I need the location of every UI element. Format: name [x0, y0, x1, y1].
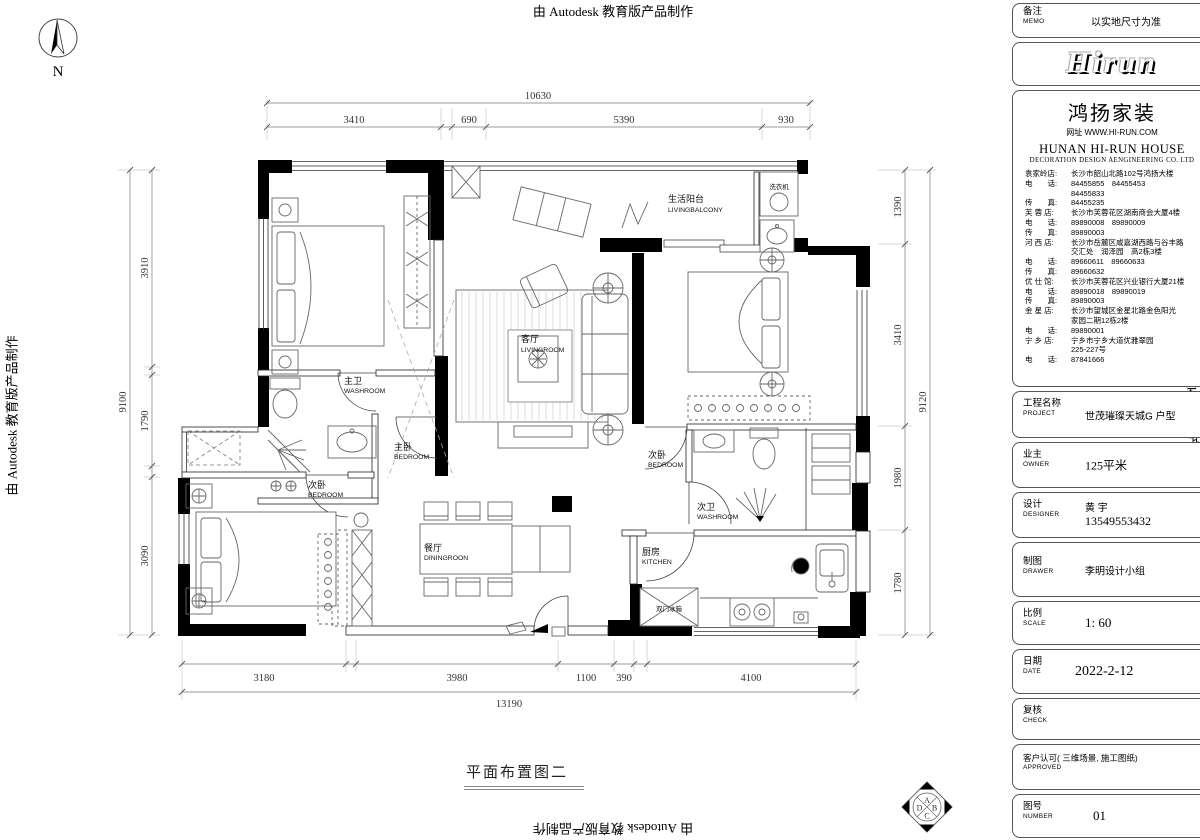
- dim-right-overall: 9120: [918, 392, 929, 413]
- contact-value: 225-227号: [1071, 345, 1106, 354]
- drawer-box: 制图DRAWER 李明设计小组: [1012, 542, 1200, 597]
- company-subtitle-en: DECORATION DESIGN AENGINEERING CO. LTD: [1013, 157, 1200, 164]
- left-bedroom-furniture: [186, 484, 338, 624]
- svg-text:690: 690: [461, 115, 477, 126]
- contact-label: 电 话:: [1025, 326, 1071, 336]
- contact-value: 89890008 89890009: [1071, 218, 1145, 227]
- project-box: 工程名称PROJECT 世茂璀璨天城G 户型: [1012, 391, 1200, 438]
- svg-text:1780: 1780: [893, 573, 904, 594]
- designer-box: 设计DESIGNER 黄 宇 13549553432: [1012, 492, 1200, 538]
- svg-text:4100: 4100: [741, 673, 762, 684]
- logo-box: Hirun: [1012, 42, 1200, 86]
- svg-text:3180: 3180: [254, 673, 275, 684]
- contact-value: 84455855 84455453: [1071, 179, 1145, 188]
- contact-line: 传 真:89660632: [1025, 267, 1200, 277]
- bedside-lamp-icon: [192, 594, 206, 608]
- contact-value: 长沙市芙蓉花区兴业银行大厦21楼: [1071, 277, 1184, 286]
- contact-value: 84455235: [1071, 198, 1104, 207]
- svg-text:B: B: [932, 804, 937, 813]
- contact-label: 宁 乡 店:: [1025, 336, 1071, 346]
- contact-value: 交汇处 润泽园 高2栋3楼: [1071, 247, 1162, 256]
- company-name-en: HUNAN HI-RUN HOUSE: [1013, 142, 1200, 157]
- svg-text:1100: 1100: [576, 673, 597, 684]
- svg-text:1980: 1980: [893, 468, 904, 489]
- contact-value: 89660632: [1071, 267, 1104, 276]
- owner-value: 125平米: [1085, 457, 1127, 474]
- second-bathroom-fixtures: [694, 428, 850, 522]
- contact-label: 电 话:: [1025, 355, 1071, 365]
- contact-line: 传 真:84455235: [1025, 198, 1200, 208]
- contact-line: 电 话:89890001: [1025, 326, 1200, 336]
- contact-label: 传 真:: [1025, 198, 1071, 208]
- title-block: 备注MEMO 以实地尺寸为准 Hirun 鸿扬家装 网址 WWW.HI-RUN.…: [1012, 0, 1200, 840]
- contact-line: 金 星 店:长沙市望城区金星北路金色阳光: [1025, 306, 1200, 316]
- designer-name: 黄 宇: [1085, 499, 1108, 514]
- north-label: N: [53, 64, 64, 80]
- bedside-lamp-icon: [760, 372, 784, 396]
- svg-text:1390: 1390: [893, 197, 904, 218]
- right-bedroom-furniture: [688, 248, 810, 420]
- dim-top-overall: 10630: [525, 91, 551, 102]
- plan-title: 平面布置图二: [464, 761, 584, 787]
- svg-text:LIVINGBALCONY: LIVINGBALCONY: [668, 207, 723, 214]
- ceiling-lamp-icon: [593, 273, 623, 303]
- contact-line: 传 真:89890003: [1025, 228, 1200, 238]
- memo-value: 以实地尺寸为准: [1091, 13, 1161, 28]
- room-label-bath2: 次卫: [697, 501, 715, 512]
- room-label-bedroom2-left: 次卧: [308, 479, 326, 490]
- svg-text:3980: 3980: [447, 673, 468, 684]
- contact-value: 家园二期12栋2楼: [1071, 316, 1129, 325]
- fridge-label: 双门冰箱: [656, 604, 683, 613]
- svg-text:WASHROOM: WASHROOM: [697, 514, 739, 521]
- contact-line: 交汇处 润泽园 高2栋3楼: [1025, 247, 1200, 257]
- hirun-logo: Hirun: [1013, 46, 1200, 80]
- contact-value: 84455833: [1071, 189, 1104, 198]
- contact-line: 电 话:89890008 89890009: [1025, 218, 1200, 228]
- contact-label: 传 真:: [1025, 228, 1071, 238]
- contact-value: 89660611 89660633: [1071, 257, 1145, 266]
- contact-label: 传 真:: [1025, 296, 1071, 306]
- contact-line: 袁家岭店:长沙市韶山北路102号鸿扬大楼: [1025, 169, 1200, 179]
- kitchen-fixtures: [640, 544, 848, 626]
- contact-label: 金 星 店:: [1025, 306, 1071, 316]
- contact-line: 芙 蓉 店:长沙市芙蓉花区湖南商会大厦4楼: [1025, 208, 1200, 218]
- contact-line: 传 真:89890003: [1025, 296, 1200, 306]
- room-label-master-bed: 主卧: [394, 441, 412, 452]
- contact-value: 长沙市岳麓区咸嘉湖西路与谷丰路: [1071, 238, 1184, 247]
- contact-value: 87841666: [1071, 355, 1104, 364]
- contact-label: 电 话:: [1025, 218, 1071, 228]
- contact-value: 89890001: [1071, 326, 1104, 335]
- room-label-master-bath: 主卫: [344, 375, 362, 386]
- contact-line: 电 话:84455855 84455453: [1025, 179, 1200, 189]
- svg-text:WASHROOM: WASHROOM: [344, 388, 386, 395]
- scale-box: 比例SCALE 1: 60: [1012, 601, 1200, 645]
- project-value: 世茂璀璨天城G 户型: [1085, 407, 1176, 422]
- room-label-living: 客厅: [521, 333, 539, 344]
- north-arrow-icon: N: [39, 19, 77, 80]
- bedside-lamp-icon: [192, 489, 206, 503]
- date-value: 2022-2-12: [1075, 664, 1133, 680]
- contact-line: 电 话:87841666: [1025, 355, 1200, 365]
- memo-box: 备注MEMO 以实地尺寸为准: [1012, 3, 1200, 38]
- contact-value: 89890003: [1071, 228, 1104, 237]
- contact-value: 宁乡市宁乡大道优雅翠园: [1071, 336, 1154, 345]
- washing-machine-label: 洗衣机: [769, 182, 789, 191]
- master-bedroom-furniture: [272, 196, 430, 374]
- svg-text:930: 930: [778, 115, 794, 126]
- svg-text:3410: 3410: [893, 325, 904, 346]
- contact-value: 89890018 89890019: [1071, 287, 1145, 296]
- svg-text:3410: 3410: [344, 115, 365, 126]
- room-label-bedroom2-right: 次卧: [648, 449, 666, 460]
- company-name: 鸿扬家装: [1013, 97, 1200, 126]
- svg-text:LIVINGROOM: LIVINGROOM: [521, 347, 565, 354]
- company-box: 鸿扬家装 网址 WWW.HI-RUN.COM HUNAN HI-RUN HOUS…: [1012, 90, 1200, 387]
- room-label-dining: 餐厅: [424, 542, 442, 553]
- dim-bottom-overall: 13190: [496, 699, 522, 710]
- contact-line: 优 仕 馆:长沙市芙蓉花区兴业银行大厦21楼: [1025, 277, 1200, 287]
- svg-text:BEDROOM: BEDROOM: [648, 462, 683, 469]
- company-contact-list: 袁家岭店:长沙市韶山北路102号鸿扬大楼 电 话:84455855 844554…: [1025, 169, 1200, 365]
- contact-value: 89890003: [1071, 296, 1104, 305]
- drawing-stamp-icon: A B C D: [902, 782, 952, 832]
- contact-label: 电 话:: [1025, 257, 1071, 267]
- designer-phone: 13549553432: [1085, 514, 1151, 529]
- contact-label: 电 话:: [1025, 287, 1071, 297]
- cad-floorplan-sheet: { "border": { "autodesk_text": "由 Autode…: [0, 0, 1200, 840]
- svg-text:A: A: [924, 796, 930, 805]
- svg-text:3910: 3910: [140, 258, 151, 279]
- company-website: 网址 WWW.HI-RUN.COM: [1013, 127, 1200, 138]
- contact-label: 电 话:: [1025, 179, 1071, 189]
- contact-value: 长沙市望城区金星北路金色阳光: [1071, 306, 1176, 315]
- svg-text:BEDROOM: BEDROOM: [308, 492, 343, 499]
- owner-box: 业主OWNER 125平米: [1012, 442, 1200, 488]
- check-box: 复核CHECK: [1012, 698, 1200, 740]
- svg-text:KITCHEN: KITCHEN: [642, 559, 672, 566]
- contact-value: 长沙市芙蓉花区湖南商会大厦4楼: [1071, 208, 1180, 217]
- dining-furniture: [332, 502, 570, 636]
- svg-text:C: C: [924, 812, 929, 821]
- svg-text:3090: 3090: [140, 546, 151, 567]
- contact-line: 电 话:89660611 89660633: [1025, 257, 1200, 267]
- living-room-furniture: [456, 263, 628, 448]
- drawer-value: 李明设计小组: [1085, 562, 1145, 577]
- svg-text:5390: 5390: [614, 115, 635, 126]
- contact-label: 河 西 店:: [1025, 238, 1071, 248]
- contact-label: 芙 蓉 店:: [1025, 208, 1071, 218]
- room-label-kitchen: 厨房: [642, 546, 660, 557]
- bedside-lamp-icon: [760, 248, 784, 272]
- dim-left-overall: 9100: [118, 392, 129, 413]
- contact-line: 宁 乡 店:宁乡市宁乡大道优雅翠园: [1025, 336, 1200, 346]
- number-box: 图号NUMBER 01: [1012, 794, 1200, 838]
- date-box: 日期DATE 2022-2-12: [1012, 649, 1200, 694]
- contact-line: 84455833: [1025, 189, 1200, 199]
- svg-text:DININGROON: DININGROON: [424, 555, 468, 562]
- ceiling-lamp-icon: [593, 415, 623, 445]
- contact-label: 传 真:: [1025, 267, 1071, 277]
- svg-text:BEDROOM: BEDROOM: [394, 454, 429, 461]
- room-label-living-balcony: 生活阳台: [668, 193, 704, 204]
- ac-unit: [188, 431, 240, 465]
- contact-line: 河 西 店:长沙市岳麓区咸嘉湖西路与谷丰路: [1025, 238, 1200, 248]
- contact-line: 电 话:89890018 89890019: [1025, 287, 1200, 297]
- svg-text:1790: 1790: [140, 411, 151, 432]
- svg-text:390: 390: [616, 673, 632, 684]
- contact-label: 优 仕 馆:: [1025, 277, 1071, 287]
- contact-line: 家园二期12栋2楼: [1025, 316, 1200, 326]
- number-value: 01: [1093, 808, 1106, 824]
- contact-line: 225-227号: [1025, 345, 1200, 355]
- memo-label-cn: 备注: [1023, 7, 1044, 18]
- contact-value: 长沙市韶山北路102号鸿扬大楼: [1071, 169, 1174, 178]
- svg-text:D: D: [917, 804, 923, 813]
- approved-box: 客户认可( 三维场景, 施工图纸)APPROVED: [1012, 744, 1200, 790]
- flue-box: [452, 166, 480, 198]
- contact-label: 袁家岭店:: [1025, 169, 1071, 179]
- scale-value: 1: 60: [1085, 615, 1111, 631]
